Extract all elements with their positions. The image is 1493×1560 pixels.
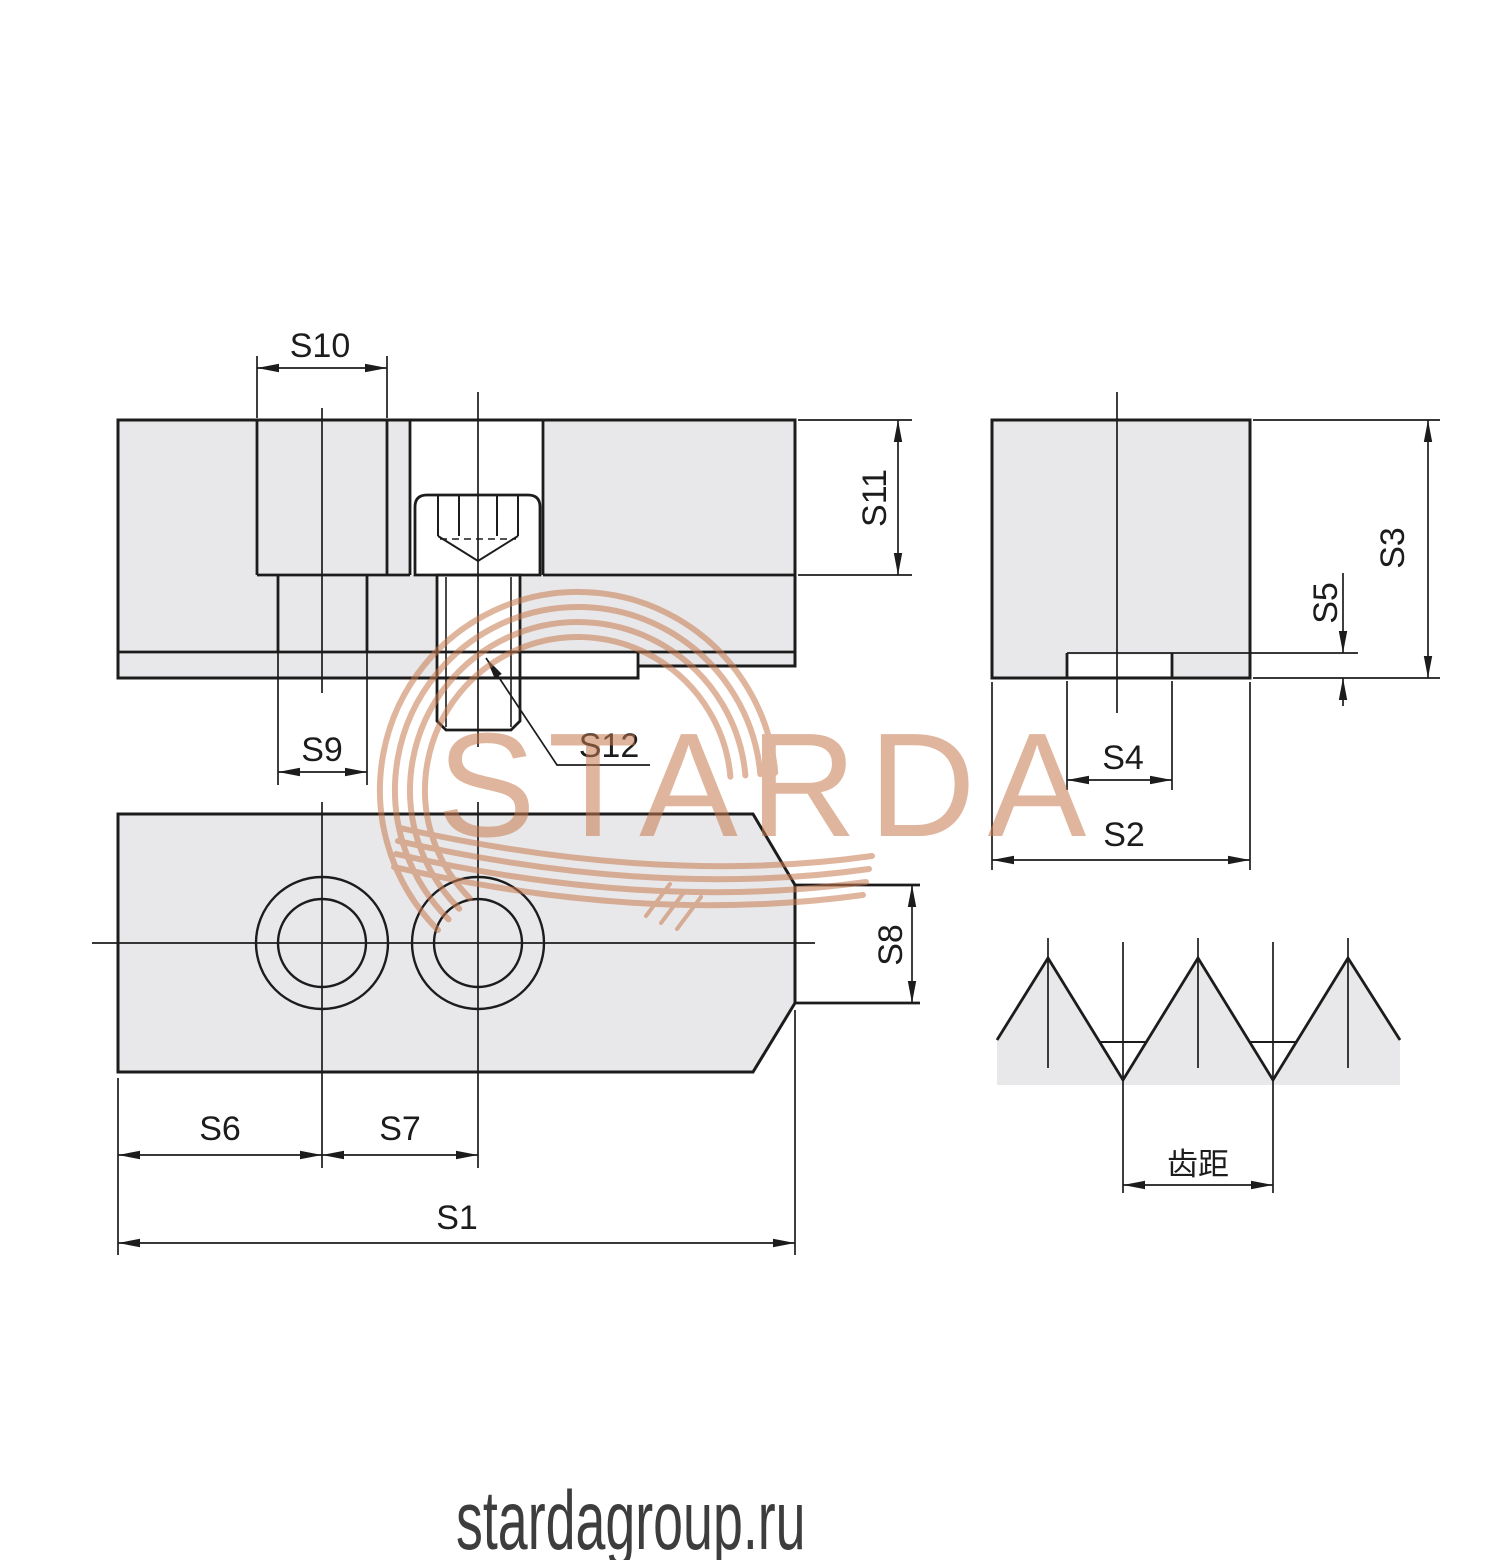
- dim-label-s3: S3: [1374, 527, 1412, 569]
- key-notch-cutout: [1068, 655, 1171, 677]
- dim-label-s9: S9: [301, 731, 343, 769]
- footer-site-url: stardagroup.ru: [456, 1473, 806, 1560]
- technical-drawing-page: S10 S9 S11 S12 S3 S5 S4: [0, 0, 1493, 1560]
- jaw-body-end: [992, 420, 1250, 678]
- watermark-brand-text: STARDA: [437, 703, 1098, 868]
- jaw-dimension-drawing: S10 S9 S11 S12 S3 S5 S4: [0, 0, 1493, 1560]
- dim-label-s2: S2: [1103, 816, 1145, 854]
- dim-label-s10: S10: [290, 327, 351, 365]
- plan-view: S6 S7 S1 S8: [92, 802, 920, 1255]
- dim-label-s1: S1: [436, 1199, 478, 1237]
- dim-label-pitch: 齿距: [1167, 1147, 1229, 1182]
- serration-detail-view: 齿距: [997, 938, 1400, 1193]
- dim-label-s6: S6: [199, 1110, 241, 1148]
- counterbore-cutout: [410, 422, 543, 576]
- dim-label-s7: S7: [379, 1110, 421, 1148]
- dim-label-s5: S5: [1307, 582, 1345, 624]
- dim-label-s8: S8: [872, 924, 910, 966]
- dim-label-s4: S4: [1102, 739, 1144, 777]
- dim-label-s11: S11: [856, 469, 894, 527]
